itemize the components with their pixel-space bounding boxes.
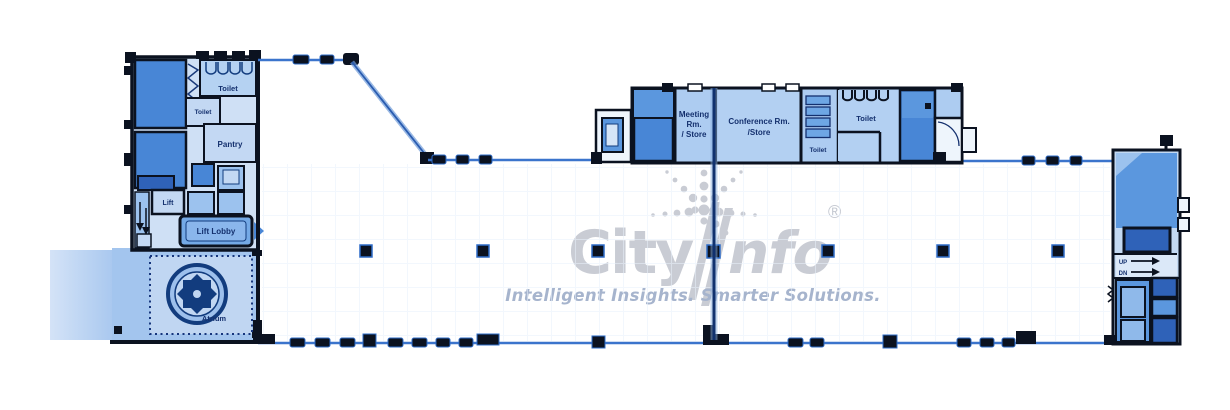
- toilet-mid-room: Toilet: [838, 90, 900, 163]
- lift-shaft-b: [218, 192, 244, 214]
- lift-west-label: Lift: [163, 200, 175, 207]
- meeting-room-label-2: Rm.: [686, 120, 701, 129]
- toilet-nw-small-label: Toilet: [195, 109, 213, 116]
- lift-west-room: Lift: [152, 190, 184, 214]
- toilet-nw-label: Toilet: [218, 84, 238, 93]
- lift-shaft-a: [188, 192, 214, 214]
- right-lift-shafts: [1116, 278, 1177, 343]
- meeting-room-label-1: Meeting: [679, 110, 709, 119]
- right-service-core: UP DN: [1104, 135, 1189, 345]
- lift-lobby-label: Lift Lobby: [197, 227, 236, 236]
- dn-label: DN: [1119, 271, 1128, 277]
- west-stairs: [135, 192, 151, 248]
- pantry-room: Pantry: [204, 124, 256, 162]
- floorplan-page: City nfo ® Intelligent Insights. Smarter…: [0, 0, 1230, 410]
- toilet-nw-room: Toilet: [200, 60, 256, 96]
- west-vestibule: [591, 110, 631, 164]
- centre-block: Meeting Rm. / Store Conference Rm. /Stor…: [632, 83, 976, 164]
- centre-dark-room-east: [900, 90, 935, 161]
- pantry-label: Pantry: [218, 140, 243, 149]
- toilet-mid-small-label: Toilet: [810, 147, 828, 154]
- duct-box: [138, 176, 174, 190]
- right-stairs: UP DN: [1113, 254, 1180, 278]
- meeting-room-label-3: / Store: [682, 130, 707, 139]
- floorplan-drawing: City nfo ® Intelligent Insights. Smarter…: [0, 0, 1230, 410]
- toilet-nw-small-room: Toilet: [186, 98, 220, 126]
- conference-room-label-1: Conference Rm.: [728, 117, 789, 126]
- atrium-label: Atrium: [202, 314, 226, 323]
- up-label: UP: [1119, 260, 1127, 266]
- floor-grid-texture: [262, 164, 1110, 341]
- core-room-nw: [135, 60, 186, 128]
- left-service-core: Toilet Toilet Pantry Lift: [124, 50, 264, 250]
- service-box-a: [192, 164, 214, 186]
- lift-lobby-room: Lift Lobby: [180, 216, 252, 246]
- right-core-machine-room: [1124, 228, 1170, 252]
- service-box-b-inner: [223, 170, 239, 184]
- conference-room-label-2: /Store: [748, 128, 771, 137]
- atrium-block: Atrium: [110, 248, 262, 342]
- centre-dark-room-west-upper: [634, 90, 673, 118]
- toilet-mid-label: Toilet: [856, 114, 876, 123]
- conference-room: Conference Rm. /Store: [717, 88, 801, 163]
- left-apron-area: [50, 250, 113, 340]
